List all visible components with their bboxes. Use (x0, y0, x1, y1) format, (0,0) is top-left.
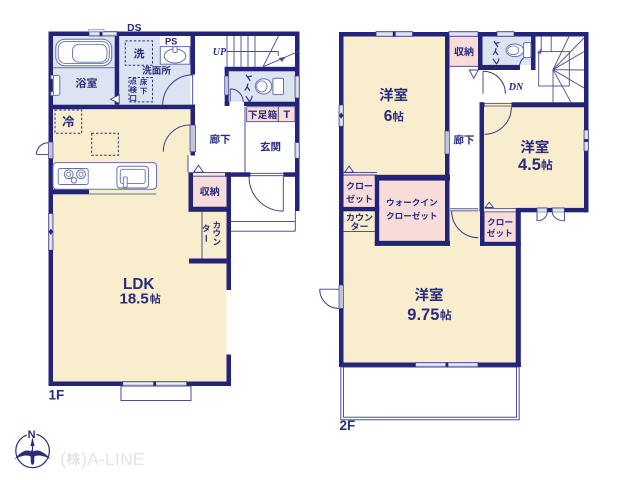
svg-text:PS: PS (165, 37, 177, 47)
svg-text:T: T (283, 109, 290, 121)
svg-text:1F: 1F (49, 388, 65, 403)
svg-text:4.5: 4.5 (518, 156, 541, 174)
svg-text:18.5: 18.5 (120, 291, 149, 308)
svg-text:DN: DN (508, 82, 524, 93)
svg-text:DS: DS (127, 23, 141, 34)
svg-text:UP: UP (213, 47, 227, 58)
svg-text:(: ( (60, 449, 66, 469)
svg-text:2F: 2F (340, 418, 356, 433)
svg-text:N: N (28, 429, 36, 441)
svg-text:)A-LINE: )A-LINE (81, 449, 145, 469)
svg-text:6: 6 (384, 108, 393, 125)
svg-text:9.75: 9.75 (407, 306, 439, 324)
